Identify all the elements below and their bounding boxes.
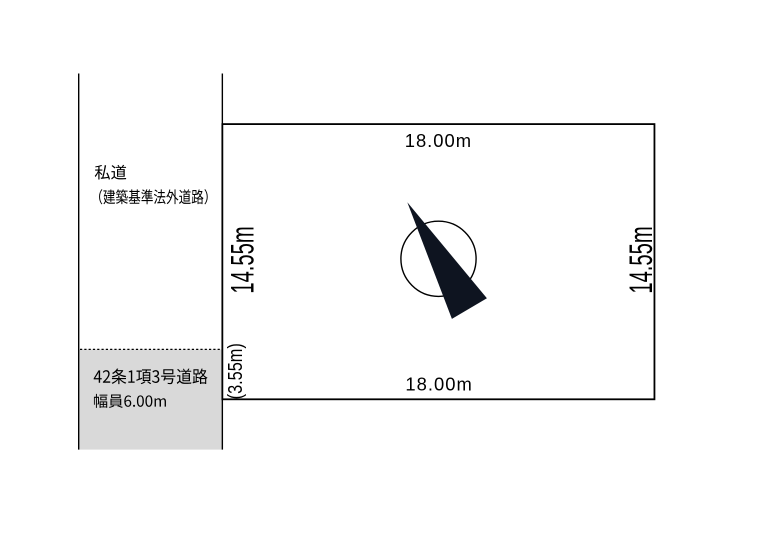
- svg-text:14.55m: 14.55m: [623, 226, 659, 293]
- svg-text:(3.55m): (3.55m): [223, 343, 246, 399]
- svg-text:18.00m: 18.00m: [405, 373, 472, 394]
- svg-text:14.55m: 14.55m: [225, 226, 261, 293]
- svg-text:18.00m: 18.00m: [405, 130, 472, 151]
